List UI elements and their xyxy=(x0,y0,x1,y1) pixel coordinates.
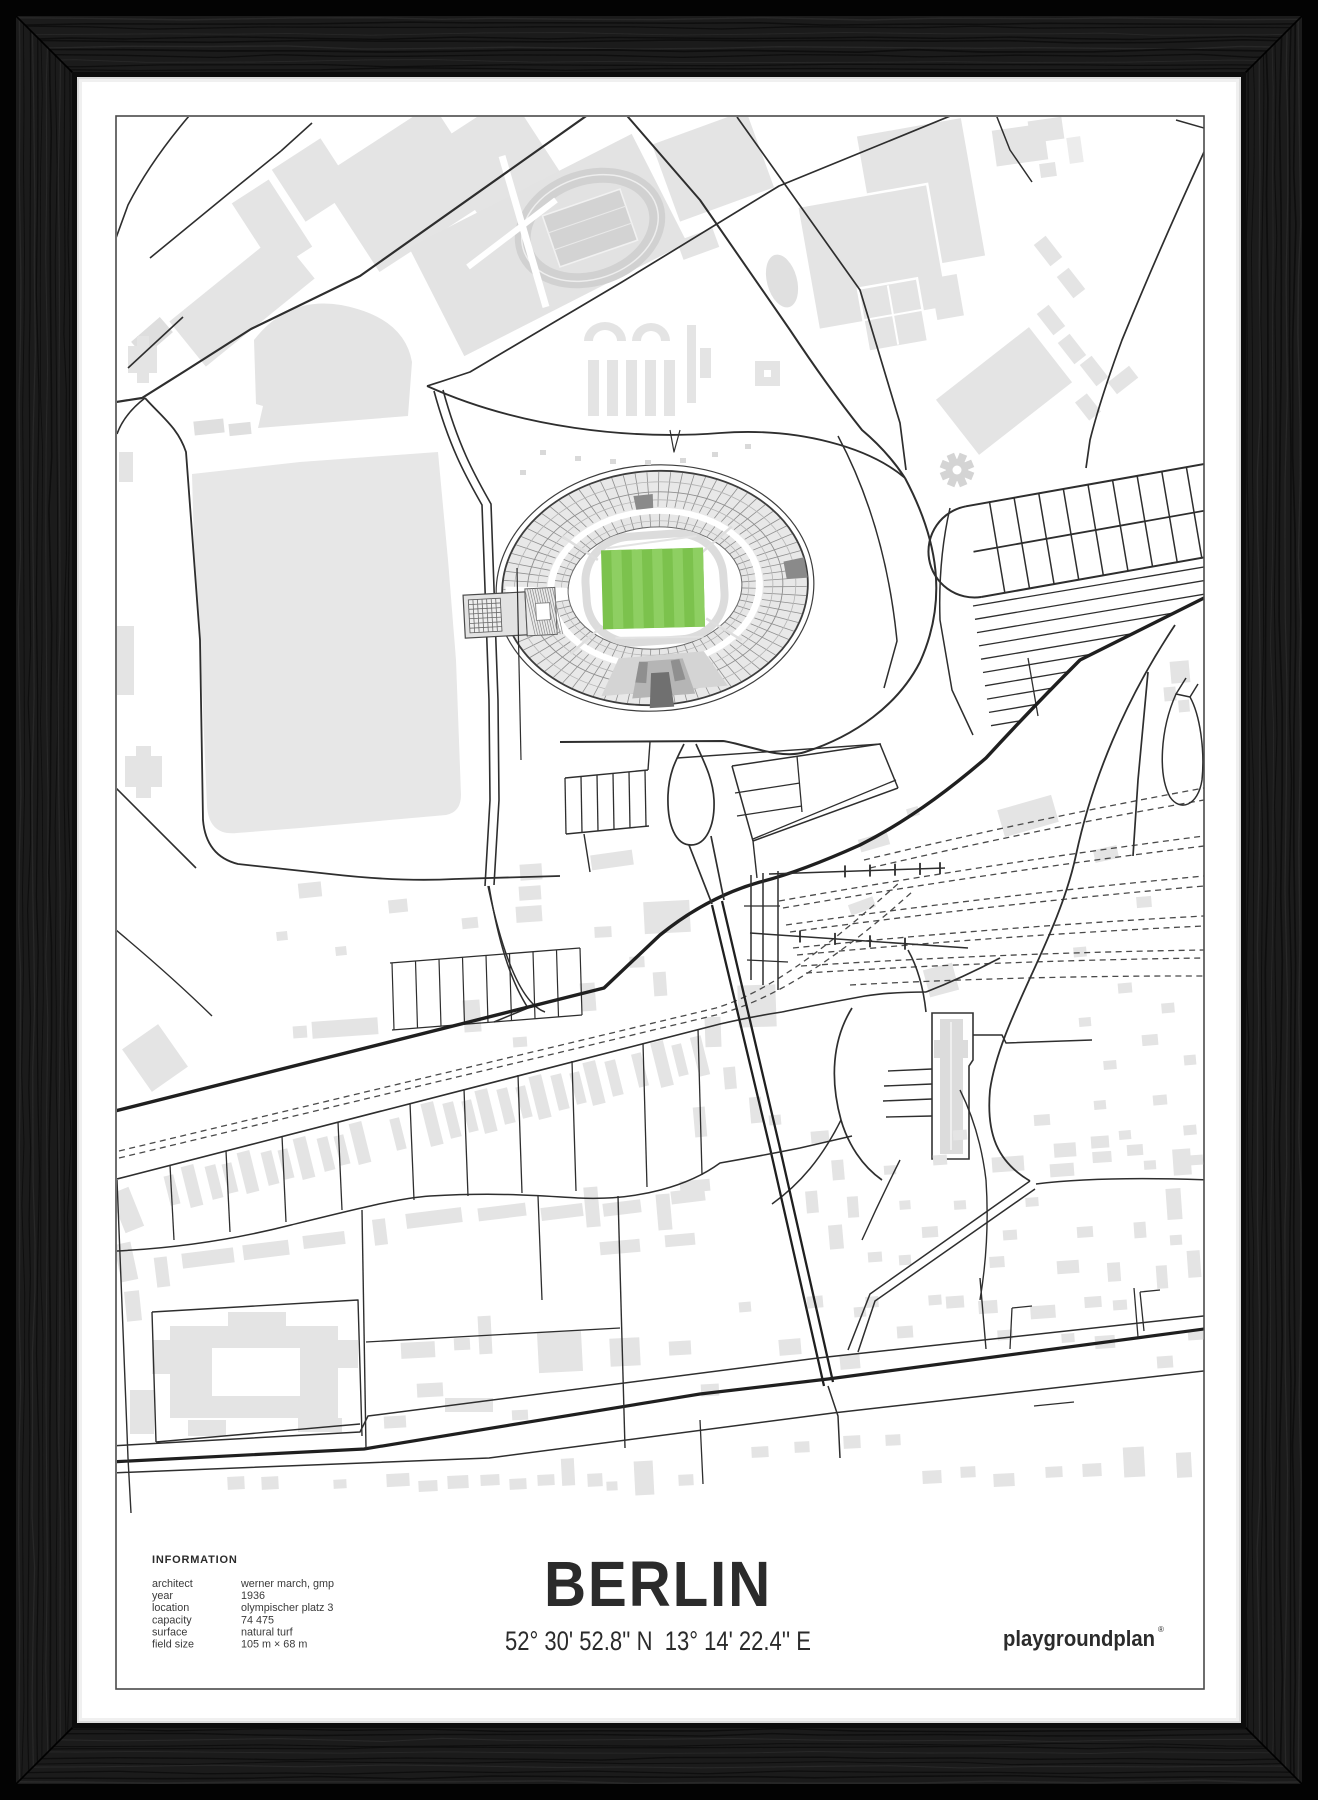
svg-text:®: ® xyxy=(1158,1625,1164,1634)
svg-text:year: year xyxy=(152,1590,173,1602)
svg-text:playgroundplan: playgroundplan xyxy=(1003,1626,1155,1651)
svg-text:INFORMATION: INFORMATION xyxy=(152,1554,238,1566)
svg-text:BERLIN: BERLIN xyxy=(544,1548,772,1620)
svg-text:surface: surface xyxy=(152,1626,187,1638)
svg-text:1936: 1936 xyxy=(241,1590,265,1602)
svg-text:field size: field size xyxy=(152,1639,194,1651)
svg-text:105 m × 68 m: 105 m × 68 m xyxy=(241,1639,307,1651)
svg-text:capacity: capacity xyxy=(152,1614,192,1626)
svg-text:olympischer platz 3: olympischer platz 3 xyxy=(241,1602,333,1614)
svg-text:architect: architect xyxy=(152,1578,193,1590)
svg-text:74 475: 74 475 xyxy=(241,1614,274,1626)
svg-text:52° 30' 52.8'' N 13° 14' 22.4: 52° 30' 52.8'' N 13° 14' 22.4'' E xyxy=(505,1626,811,1656)
svg-text:natural turf: natural turf xyxy=(241,1626,294,1638)
svg-text:location: location xyxy=(152,1602,189,1614)
svg-text:werner march, gmp: werner march, gmp xyxy=(240,1578,334,1590)
